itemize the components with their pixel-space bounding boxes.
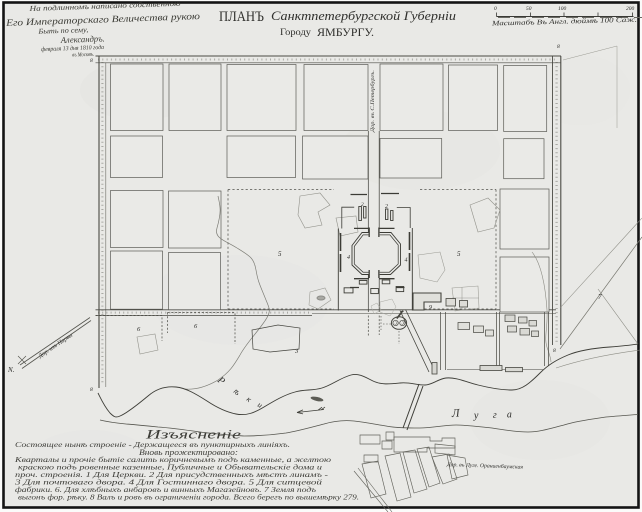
svg-text:ЯМБУРГУ.: ЯМБУРГУ. — [317, 27, 374, 39]
svg-text:2: 2 — [385, 204, 388, 210]
svg-text:5: 5 — [457, 250, 461, 258]
svg-text:Санктпетербургской Губернiи: Санктпетербургской Губернiи — [271, 8, 457, 23]
svg-text:Городу: Городу — [280, 28, 311, 38]
svg-text:0: 0 — [494, 6, 497, 12]
svg-text:г: г — [493, 410, 498, 421]
svg-text:200: 200 — [626, 6, 635, 12]
svg-text:7: 7 — [598, 292, 602, 301]
svg-text:9: 9 — [429, 305, 432, 311]
svg-text:5: 5 — [278, 250, 282, 258]
svg-text:ПЛАНЪ: ПЛАНЪ — [219, 9, 264, 25]
svg-text:8: 8 — [553, 348, 556, 354]
svg-text:50: 50 — [526, 6, 532, 12]
svg-text:8: 8 — [557, 44, 560, 50]
svg-text:4: 4 — [405, 257, 408, 264]
svg-text:2: 2 — [361, 202, 364, 208]
svg-text:8: 8 — [90, 387, 93, 393]
svg-text:100: 100 — [558, 6, 567, 12]
svg-text:выгонъ фор. рѣку. 8 Валъ и ров: выгонъ фор. рѣку. 8 Валъ и ровъ въ огран… — [18, 494, 359, 502]
svg-text:а: а — [507, 409, 513, 420]
svg-text:Дор. въ С.Петербургъ.: Дор. въ С.Петербургъ. — [371, 70, 376, 133]
svg-text:у: у — [473, 410, 480, 421]
svg-text:4: 4 — [347, 254, 350, 261]
svg-text:8: 8 — [90, 58, 93, 64]
svg-text:Изъясненiе: Изъясненiе — [144, 427, 241, 442]
svg-text:N.: N. — [7, 366, 15, 374]
